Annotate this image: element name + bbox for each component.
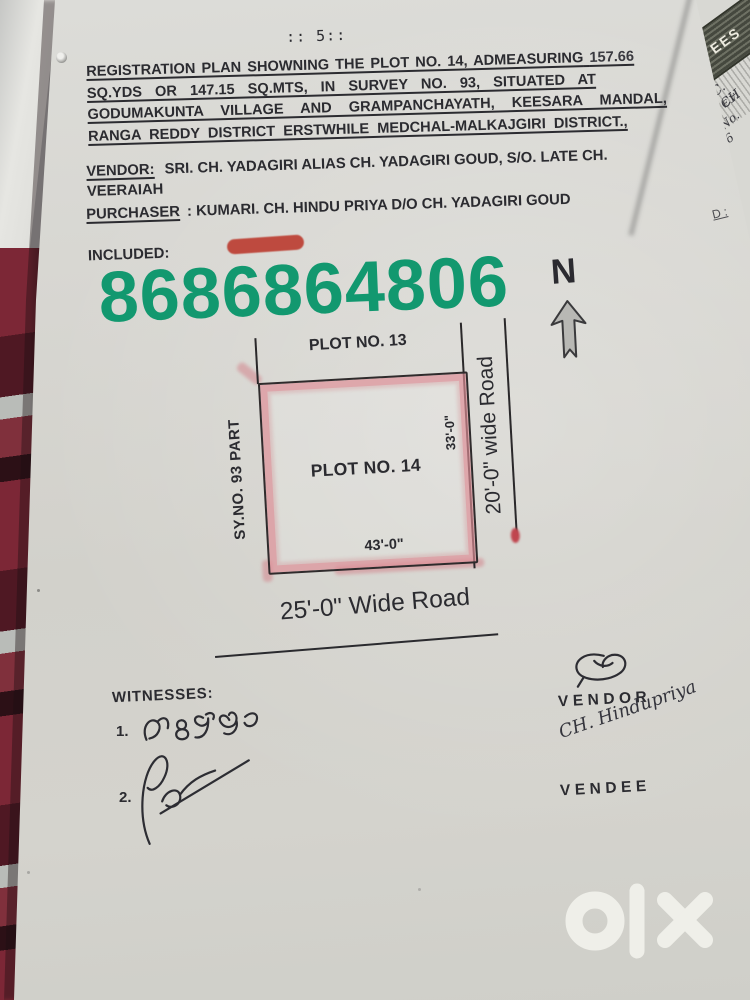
staple-hole bbox=[56, 52, 67, 63]
plot-diagram: PLOT NO. 13 PLOT NO. 14 33'-0" 43'-0" SY… bbox=[197, 314, 557, 608]
north-arrow-icon bbox=[547, 298, 591, 368]
witness-1-number: 1. bbox=[116, 723, 129, 740]
dust-speck bbox=[418, 888, 421, 891]
plot-13-label: PLOT NO. 13 bbox=[309, 332, 408, 355]
dust-speck bbox=[37, 589, 40, 592]
survey-93-label: SY.NO. 93 PART bbox=[225, 419, 249, 541]
purchaser-label: PURCHASER bbox=[86, 204, 180, 223]
dim-33-label: 33'-0" bbox=[441, 414, 458, 450]
witness-2-number: 2. bbox=[119, 789, 132, 806]
vendor-signature bbox=[567, 645, 639, 692]
photo-of-registration-plan: EES C. CH E.V. L.No. 16 D : :: 5:: REGIS… bbox=[0, 0, 750, 1000]
page-number: :: 5:: bbox=[286, 26, 347, 46]
olx-logo-o bbox=[574, 900, 616, 942]
olx-watermark bbox=[565, 878, 725, 964]
vendor-label: VENDOR: bbox=[86, 162, 155, 180]
road-line-red-tip bbox=[510, 528, 520, 543]
admeasuring-value: 157.66 bbox=[589, 49, 634, 66]
dust-speck bbox=[27, 871, 30, 874]
witness-2-signature bbox=[130, 744, 273, 849]
north-label: N bbox=[550, 251, 578, 293]
road-20-label: 20'-0" wide Road bbox=[474, 355, 507, 515]
dim-43-label: 43'-0" bbox=[364, 536, 404, 554]
